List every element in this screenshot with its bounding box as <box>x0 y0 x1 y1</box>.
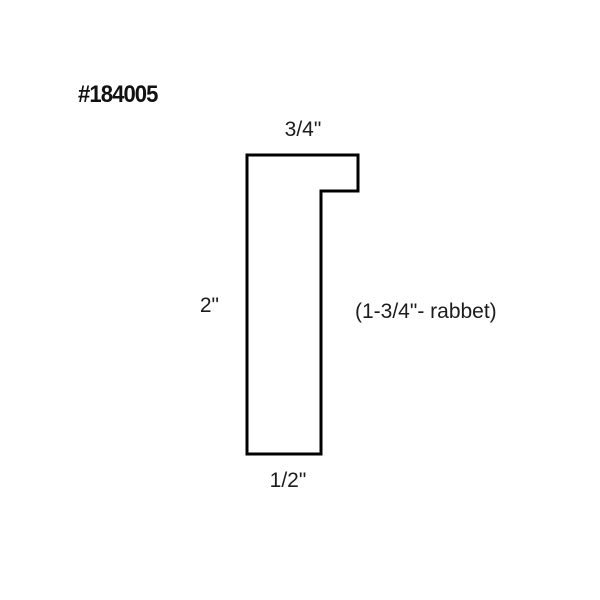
profile-outline-drawing <box>0 0 600 600</box>
top-width-dimension-label: 3/4" <box>285 119 322 140</box>
moulding-profile-shape <box>247 155 358 454</box>
moulding-diagram: #184005 3/4" 2" (1-3/4"- rabbet) 1/2" <box>0 0 600 600</box>
bottom-width-dimension-label: 1/2" <box>270 470 307 491</box>
rabbet-dimension-label: (1-3/4"- rabbet) <box>355 301 497 322</box>
overall-height-dimension-label: 2" <box>200 295 219 316</box>
